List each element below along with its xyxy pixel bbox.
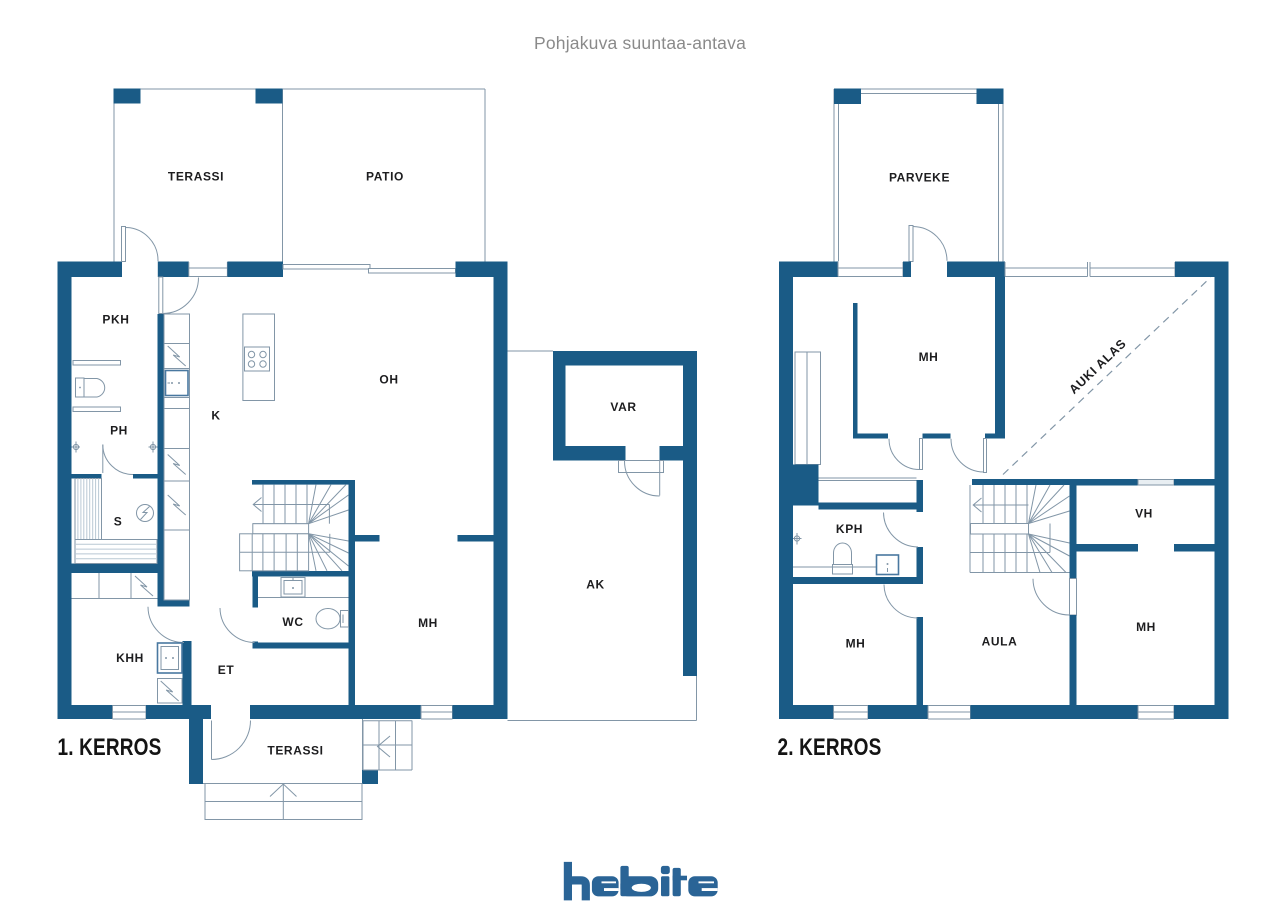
svg-text:ET: ET	[218, 663, 235, 677]
svg-text:1. KERROS: 1. KERROS	[58, 734, 162, 761]
svg-text:WC: WC	[282, 615, 303, 629]
svg-text:S: S	[114, 515, 123, 529]
svg-text:PKH: PKH	[102, 313, 129, 327]
svg-text:AULA: AULA	[982, 635, 1018, 649]
svg-text:TERASSI: TERASSI	[267, 744, 323, 758]
svg-text:AK: AK	[586, 578, 605, 592]
svg-text:VAR: VAR	[610, 400, 636, 414]
svg-text:KHH: KHH	[116, 651, 144, 665]
svg-text:2. KERROS: 2. KERROS	[778, 734, 882, 761]
svg-text:PARVEKE: PARVEKE	[889, 171, 950, 185]
svg-text:OH: OH	[379, 373, 398, 387]
svg-text:MH: MH	[1136, 620, 1156, 634]
svg-text:MH: MH	[846, 637, 866, 651]
svg-text:KPH: KPH	[836, 522, 863, 536]
svg-text:PATIO: PATIO	[366, 170, 404, 184]
svg-text:TERASSI: TERASSI	[168, 170, 224, 184]
svg-text:VH: VH	[1135, 507, 1153, 521]
svg-text:MH: MH	[418, 616, 438, 630]
svg-text:MH: MH	[919, 350, 939, 364]
svg-text:Pohjakuva suuntaa-antava: Pohjakuva suuntaa-antava	[534, 33, 746, 53]
svg-text:K: K	[211, 409, 220, 423]
svg-text:PH: PH	[110, 424, 128, 438]
